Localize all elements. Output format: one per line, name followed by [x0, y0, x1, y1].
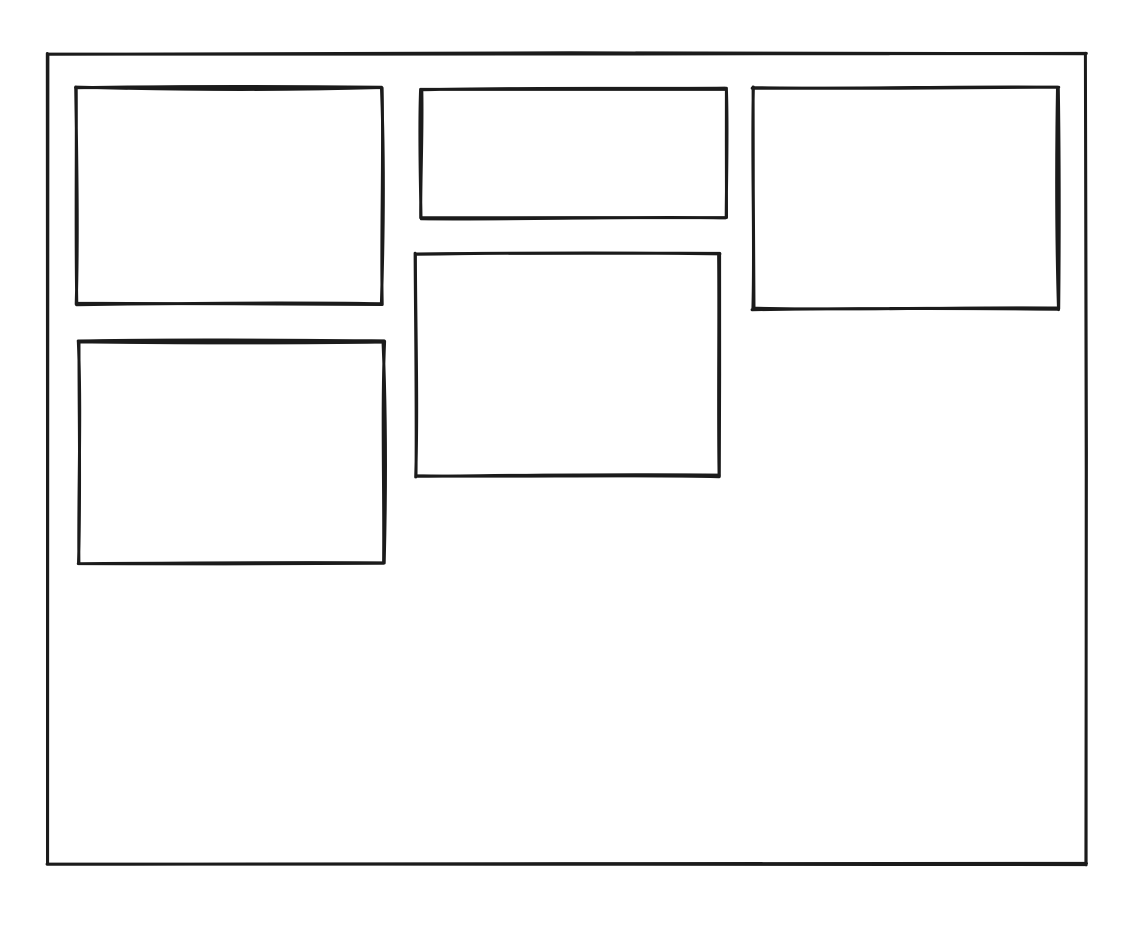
outer-frame	[47, 53, 1087, 865]
box-top-right	[752, 87, 1059, 310]
box-top-middle	[420, 88, 727, 219]
box-top-left	[76, 86, 384, 304]
box-mid-left	[78, 340, 385, 564]
wireframe-canvas	[0, 0, 1144, 938]
sketch-drawing	[0, 0, 1144, 938]
box-center	[415, 253, 720, 477]
